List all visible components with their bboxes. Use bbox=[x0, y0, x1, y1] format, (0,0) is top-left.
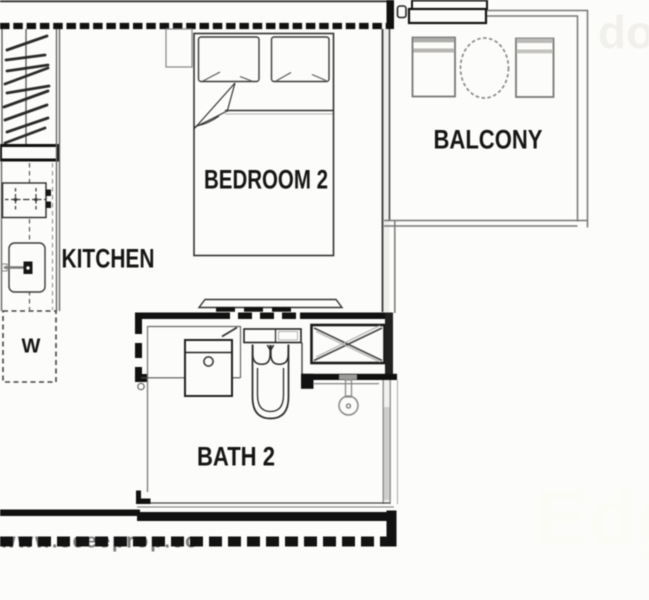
svg-text:W: W bbox=[22, 336, 41, 358]
svg-text:BALCONY: BALCONY bbox=[434, 125, 543, 155]
svg-text:BATH 2: BATH 2 bbox=[197, 442, 275, 472]
svg-text:BEDROOM 2: BEDROOM 2 bbox=[204, 165, 328, 195]
svg-text:do: do bbox=[598, 6, 649, 58]
svg-text:www.eeeeprop.co: www.eeeeprop.co bbox=[0, 531, 199, 553]
svg-text:Edg: Edg bbox=[535, 473, 649, 562]
svg-text:KITCHEN: KITCHEN bbox=[62, 244, 155, 274]
